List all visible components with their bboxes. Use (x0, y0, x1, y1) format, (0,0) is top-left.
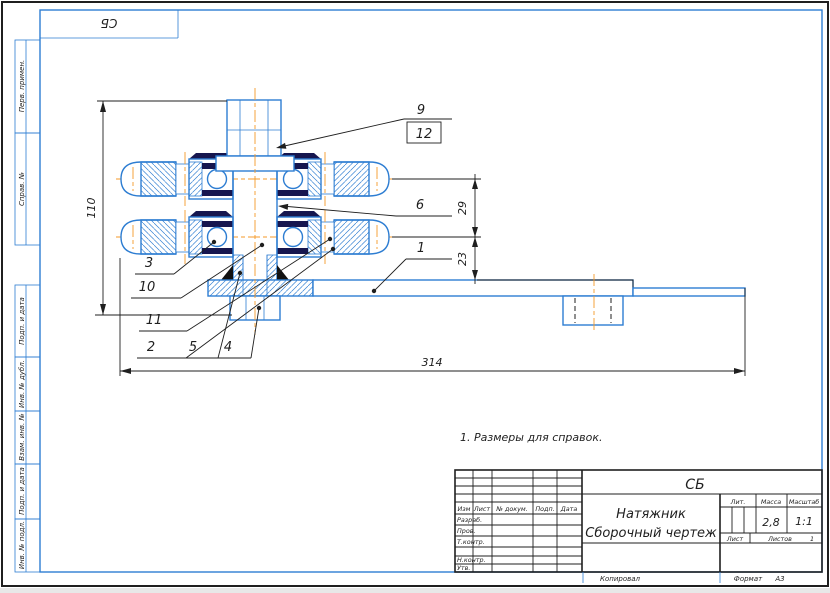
sheets-label: Листов (767, 535, 792, 543)
margin-label-podp-data-1: Подп. и дата (18, 297, 26, 345)
callout-6-text: 6 (416, 198, 424, 213)
welded-nut-block (563, 296, 623, 325)
part-name-line1: Натяжник (616, 507, 686, 522)
col-sign: Подп. (535, 505, 554, 513)
dim-23-text: 23 (456, 252, 469, 266)
dim-29-text: 29 (456, 201, 469, 215)
sheets-value: 1 (810, 535, 814, 543)
row-checked: Пров. (457, 527, 476, 535)
row-ncontrol: Н.контр. (457, 556, 486, 564)
row-tcontrol: Т.контр. (457, 538, 485, 546)
callout-9-text: 9 (417, 103, 425, 118)
col-izm: Изм (458, 505, 471, 513)
callout-1-text: 1 (417, 241, 425, 256)
row-approved: Утв. (457, 564, 470, 572)
margin-label-podp-data-2: Подп. и дата (18, 467, 26, 515)
callout-5-text: 5 (189, 340, 197, 355)
format-label: Формат (734, 575, 763, 583)
corner-stamp-text: СБ (101, 16, 118, 30)
margin-label-inv-dubl: Инв. № дубл. (18, 360, 26, 408)
callout-3-text: 3 (145, 256, 153, 271)
gost-assembly-drawing: СБ Перв. примен. Справ. № Подп. и дата И… (0, 0, 830, 588)
callout-12-text: 12 (416, 127, 433, 142)
margin-label-sprav-no: Справ. № (18, 172, 26, 206)
margin-label-inv-podl: Инв. № подл. (18, 521, 26, 569)
callout-10-text: 10 (139, 280, 156, 295)
drawing-sheet: СБ Перв. примен. Справ. № Подп. и дата И… (0, 0, 830, 588)
base-plate (208, 280, 313, 296)
format-value: А3 (774, 575, 784, 583)
callout-11-text: 11 (146, 313, 163, 328)
row-developed: Разраб. (457, 516, 482, 524)
mass-value: 2,8 (762, 516, 780, 529)
arm-tab (633, 288, 745, 296)
dim-110-text: 110 (85, 198, 98, 219)
dim-314-text: 314 (422, 356, 443, 369)
col-date: Дата (560, 505, 578, 513)
copied-label: Копировал (600, 575, 641, 583)
designation-text: СБ (685, 477, 704, 493)
col-doc: № докум. (495, 505, 528, 513)
col-list: Лист (473, 505, 490, 513)
part-name-line2: Сборочный чертеж (585, 526, 717, 541)
callout-4-text: 4 (224, 340, 232, 355)
scale-value: 1:1 (795, 515, 813, 528)
lit-label: Лит. (730, 498, 746, 506)
margin-label-perv-primen: Перв. примен. (18, 60, 26, 113)
callout-2-text: 2 (147, 340, 155, 355)
mass-label: Масса (761, 498, 781, 506)
reference-note: 1. Размеры для справок. (460, 431, 603, 444)
sheet-label: Лист (726, 535, 743, 543)
scale-label: Масштаб (789, 498, 819, 506)
lever-arm (313, 280, 633, 296)
margin-label-vzam-inv: Взам. инв. № (18, 413, 26, 461)
